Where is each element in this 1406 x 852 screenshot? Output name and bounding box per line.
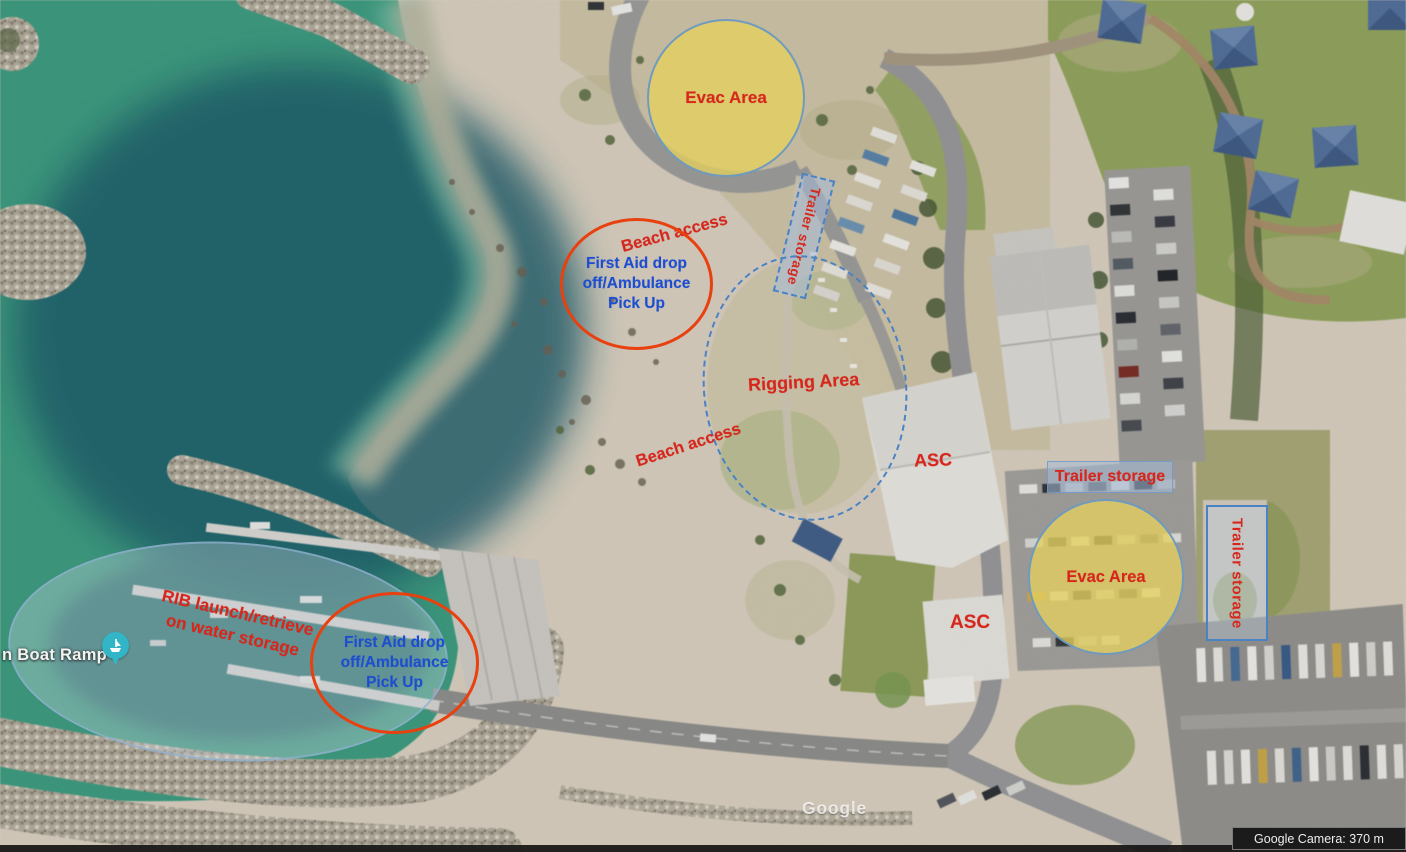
- evac-area-north-label: Evac Area: [685, 88, 767, 108]
- trailer-storage-far-east-label: Trailer storage: [1229, 518, 1246, 629]
- trailer-storage-east-zone: Trailer storage: [1047, 461, 1173, 493]
- bottom-letterbox: [0, 845, 1406, 852]
- evac-area-south-label: Evac Area: [1066, 568, 1145, 587]
- boat-ramp-place-label: n Boat Ramp: [2, 646, 107, 665]
- boat-ramp-icon: [107, 637, 124, 654]
- asc-north-label: ASC: [914, 449, 953, 471]
- evac-area-south-zone: Evac Area: [1028, 499, 1184, 655]
- boat-ramp-pin[interactable]: [102, 632, 129, 659]
- trailer-storage-far-east-zone: Trailer storage: [1206, 505, 1268, 641]
- trailer-storage-east-label: Trailer storage: [1055, 468, 1165, 486]
- evac-area-north-zone: Evac Area: [647, 19, 805, 177]
- satellite-map-canvas[interactable]: RIB launch/retrieve on water storage Eva…: [0, 0, 1406, 852]
- asc-south-label: ASC: [950, 612, 990, 634]
- first-aid-south-label: First Aid drop off/Ambulance Pick Up: [341, 633, 449, 692]
- google-watermark: Google: [802, 798, 867, 819]
- first-aid-south-zone: First Aid drop off/Ambulance Pick Up: [310, 592, 479, 734]
- first-aid-north-zone: First Aid drop off/Ambulance Pick Up: [560, 218, 713, 350]
- first-aid-north-label: First Aid drop off/Ambulance Pick Up: [583, 254, 691, 313]
- camera-altitude-readout: Google Camera: 370 m: [1232, 827, 1406, 850]
